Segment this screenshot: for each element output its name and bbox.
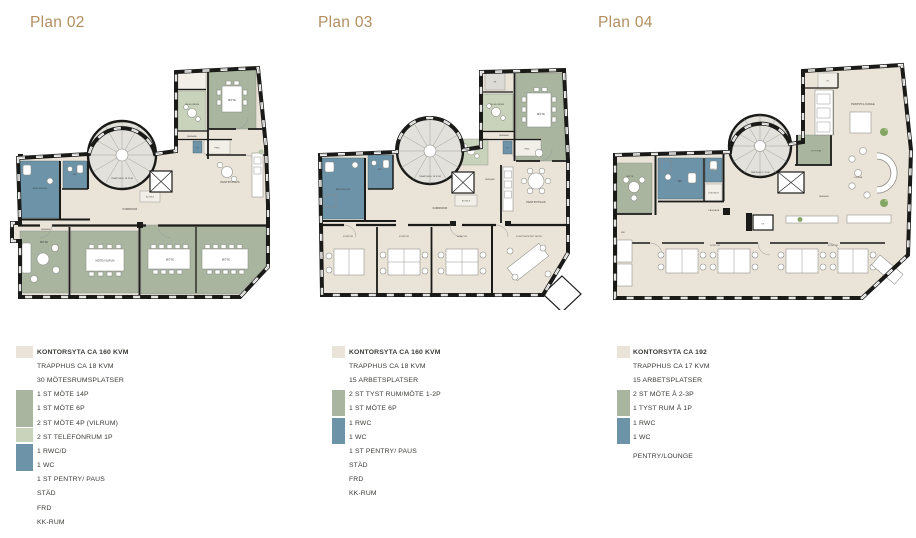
swatch-phone-1 bbox=[16, 428, 33, 442]
legend-row: 1 WC bbox=[37, 459, 129, 473]
room-label-pentry: PENTRY/PAUS bbox=[220, 180, 239, 184]
room-label-trapphus: TRAPPHUS 18 KVM bbox=[419, 175, 441, 178]
room-label-pentry: PENTRY/PAUS bbox=[526, 200, 545, 204]
room-label-mote: MÖTE bbox=[537, 112, 545, 116]
legend-row: KONTORSYTA CA 192 bbox=[633, 345, 710, 359]
room-label-rwc: RWC bbox=[711, 169, 716, 171]
legend-row: FRD bbox=[37, 501, 129, 515]
room-label-el: EL bbox=[827, 81, 830, 83]
room-label-frd: FRD bbox=[215, 148, 220, 150]
room-label-rwc: RWC/DUSCH bbox=[336, 189, 351, 191]
plan-04-elevator bbox=[778, 172, 804, 193]
swatch-wet-3 bbox=[617, 418, 630, 444]
room-label-passage: PASSAGE bbox=[187, 135, 197, 138]
legend-row: 1 ST PENTRY/ PAUS bbox=[349, 444, 441, 458]
legend-plan-04: KONTORSYTA CA 192 TRAPPHUS CA 17 KVM 15 … bbox=[633, 345, 710, 464]
room-label-mote-bl: MÖTE bbox=[40, 240, 48, 244]
swatch-office-1 bbox=[16, 346, 33, 358]
legend-row: 2 ST TYST RUM/MÖTE 1-2P bbox=[349, 388, 441, 402]
room-label-kontor2: KONTOR bbox=[399, 236, 409, 238]
legend-row: KONTORSYTA CA 160 KVM bbox=[349, 345, 441, 359]
room-label-tyst-rum: TYST RUM bbox=[811, 151, 822, 153]
plan-04-title: Plan 04 bbox=[598, 14, 653, 32]
swatch-office-2 bbox=[332, 346, 345, 358]
legend-row: 2 ST TELEFONRUM 1P bbox=[37, 430, 129, 444]
room-label-passage-mid: PASSAGE bbox=[485, 178, 495, 181]
plan-02-floorplan: RWC/DUSCH WC TELEFONRUM PASSAGE MÖTE ST … bbox=[0, 55, 300, 310]
room-label-lounge: LOUNGE bbox=[854, 177, 863, 179]
legend-row: 15 ARBETSPLATSER bbox=[633, 373, 710, 387]
room-label-wc: WC bbox=[678, 179, 683, 183]
room-label-mote-br1: MÖTE bbox=[166, 258, 174, 262]
room-label-kontor3: KONTOR bbox=[457, 236, 467, 238]
room-label-rwc: RWC/DUSCH bbox=[33, 188, 48, 190]
legend-row: 1 RWC/D bbox=[37, 444, 129, 458]
room-label-passage: PASSAGE bbox=[499, 134, 509, 137]
room-label-wc: WC bbox=[378, 169, 382, 171]
room-label-trapphus: TRAPPHUS 17 KVM bbox=[750, 171, 769, 174]
swatch-office-3 bbox=[617, 346, 630, 358]
legend-row: 2 ST MÖTE 4P (VILRUM) bbox=[37, 416, 129, 430]
room-label-mote-br2: MÖTE bbox=[222, 258, 230, 262]
room-label-kontor1: KONTOR bbox=[343, 236, 353, 238]
swatch-meeting-1 bbox=[16, 390, 33, 427]
legend-row: 2 ST MÖTE Å 2-3P bbox=[633, 388, 710, 402]
room-label-passage-left: PASSAGE bbox=[41, 228, 51, 231]
legend-row: KK-RUM bbox=[37, 515, 129, 529]
swatch-meeting-2 bbox=[332, 390, 345, 416]
legend-row: 1 TYST RUM Å 1P bbox=[633, 402, 710, 416]
room-label-mote: MÖTE bbox=[228, 98, 236, 102]
legend-row: 15 ARBETSPLATSER bbox=[349, 373, 441, 387]
room-label-frd: FRD bbox=[525, 149, 530, 151]
room-label-kontor2: KONTOR bbox=[828, 245, 838, 247]
room-label-passage-right: PASSAGE bbox=[819, 195, 829, 198]
swatch-wet-2 bbox=[332, 418, 345, 444]
legend-row: FRD bbox=[349, 473, 441, 487]
swatch-meeting-3 bbox=[617, 390, 630, 416]
legend-row: 1 WC bbox=[349, 430, 441, 444]
room-label-trapphus: TRAPPHUS 18 KVM bbox=[111, 177, 133, 180]
room-label-korridor: KORRIDOR bbox=[123, 207, 138, 211]
room-label-telefonrum-mid: TELEFONRUM bbox=[465, 149, 479, 151]
legend-plan-03: KONTORSYTA CA 160 KVM TRAPPHUS CA 18 KVM… bbox=[349, 345, 441, 501]
legend-row: TRAPPHUS CA 17 KVM bbox=[633, 359, 710, 373]
legend-row: 1 WC bbox=[633, 430, 710, 444]
room-label-telefonrum: TELEFONRUM bbox=[185, 104, 199, 106]
legend-row: 1 ST MÖTE 6P bbox=[37, 402, 129, 416]
legend-row: STÄD bbox=[37, 487, 129, 501]
room-label-kontor-oppet: KONTOR/ÖPPET MÖTE bbox=[516, 235, 542, 238]
plan-03-floorplan: KK TELEFONRUM PASSAGE MÖTE FRD ST TELEFO… bbox=[300, 55, 600, 310]
plan-03-elevator bbox=[452, 172, 474, 193]
legend-row: 30 MÖTESRUMSPLATSER bbox=[37, 373, 129, 387]
room-label-dusch: ST/DUSCH bbox=[708, 193, 719, 195]
room-label-mote: MÖTE bbox=[627, 175, 634, 178]
legend-row: 1 ST MÖTE 6P bbox=[349, 402, 441, 416]
room-label-pentry-lounge: PENTRY/LOUNGE bbox=[851, 102, 875, 106]
room-label-passage-left: PASSAGE bbox=[709, 209, 720, 212]
legend-row: TRAPPHUS CA 18 KVM bbox=[349, 359, 441, 373]
legend-row: 1 ST MÖTE 14P bbox=[37, 388, 129, 402]
swatch-wet-1 bbox=[16, 444, 33, 471]
room-label-eltele: EL/TELE bbox=[146, 197, 155, 199]
plan-04-floorplan: MÖTE WC RWC ST/DUSCH EL PENTRY/LOUNGE TY… bbox=[600, 55, 916, 310]
room-label-mote-vilrum: MÖTE/VILRUM bbox=[95, 259, 114, 263]
legend-row: 1 RWC bbox=[633, 416, 710, 430]
legend-plan-02: KONTORSYTA CA 160 KVM TRAPPHUS CA 18 KVM… bbox=[37, 345, 129, 529]
legend-row: KK-RUM bbox=[349, 487, 441, 501]
legend-row: 1 RWC bbox=[349, 416, 441, 430]
legend-row: PENTRY/LOUNGE bbox=[633, 449, 710, 463]
legend-row: 1 ST PENTRY/ PAUS bbox=[37, 473, 129, 487]
legend-row: TRAPPHUS CA 18 KVM bbox=[37, 359, 129, 373]
room-label-telefonrum: TELEFONRUM bbox=[490, 104, 504, 106]
plan-02-elevator bbox=[150, 171, 172, 192]
room-label-eltele: EL/TELE bbox=[462, 201, 471, 203]
legend-row: KONTORSYTA CA 160 KVM bbox=[37, 345, 129, 359]
plan-02-title: Plan 02 bbox=[30, 14, 85, 32]
room-label-frd: FRD bbox=[621, 232, 626, 234]
plan-03-title: Plan 03 bbox=[318, 14, 373, 32]
room-label-korridor: KORRIDOR bbox=[433, 206, 448, 210]
room-label-wc: WC bbox=[73, 174, 77, 176]
legend-row: STÄD bbox=[349, 459, 441, 473]
room-label-kontor1: KONTOR bbox=[710, 245, 720, 247]
